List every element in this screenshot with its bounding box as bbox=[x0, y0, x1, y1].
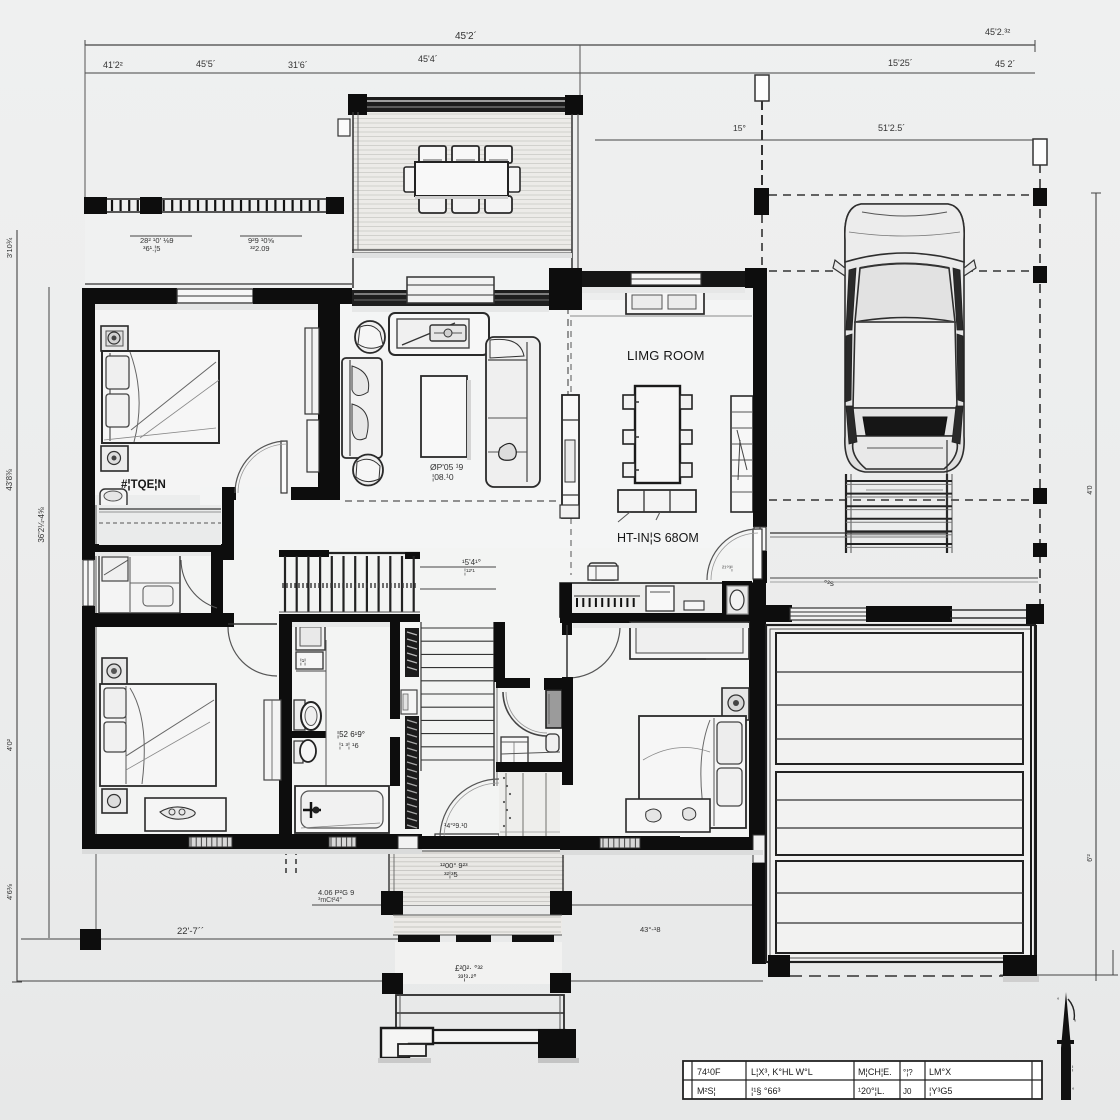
svg-text:15'25´: 15'25´ bbox=[888, 58, 913, 68]
svg-text:ØP'05 ¹9: ØP'05 ¹9 bbox=[430, 462, 464, 472]
svg-text:LIMG ROOM: LIMG ROOM bbox=[627, 348, 705, 363]
svg-text:3'10¾: 3'10¾ bbox=[5, 237, 14, 258]
svg-text:³²¦³5: ³²¦³5 bbox=[444, 870, 458, 879]
svg-text:£²0²· °³²: £²0²· °³² bbox=[455, 964, 483, 973]
svg-text:¦08.¹0: ¦08.¹0 bbox=[432, 472, 454, 482]
svg-text:LM°X: LM°X bbox=[929, 1067, 951, 1077]
svg-text:4'6⅜: 4'6⅜ bbox=[5, 883, 14, 900]
svg-text:²¹°³¦: ²¹°³¦ bbox=[722, 564, 733, 572]
svg-text:¹20°¦L.: ¹20°¦L. bbox=[858, 1086, 884, 1096]
svg-text:L¦X³, K°HL W°L: L¦X³, K°HL W°L bbox=[751, 1067, 813, 1077]
svg-text:41'2²: 41'2² bbox=[103, 60, 123, 70]
svg-text:M²S¦: M²S¦ bbox=[697, 1086, 716, 1096]
svg-text:M¦CH¦E.: M¦CH¦E. bbox=[858, 1067, 892, 1077]
svg-text:4'0: 4'0 bbox=[1087, 485, 1094, 494]
svg-text:J0: J0 bbox=[903, 1087, 912, 1096]
svg-text:4.06 P²G 9: 4.06 P²G 9 bbox=[318, 888, 354, 897]
svg-text:#¦TQE¦N: #¦TQE¦N bbox=[121, 479, 166, 491]
svg-text:31'6´: 31'6´ bbox=[288, 60, 308, 70]
svg-text:45'2.³²: 45'2.³² bbox=[985, 27, 1010, 37]
svg-text:³6¹.¦5: ³6¹.¦5 bbox=[143, 244, 160, 253]
svg-text:³³¦³·²°: ³³¦³·²° bbox=[458, 973, 477, 982]
svg-text:74¹0F: 74¹0F bbox=[697, 1067, 721, 1077]
svg-text:³mCt²4°: ³mCt²4° bbox=[318, 896, 342, 904]
svg-text:45'5´: 45'5´ bbox=[196, 59, 216, 69]
svg-text:15°: 15° bbox=[733, 123, 746, 133]
svg-text:43°-¹8: 43°-¹8 bbox=[640, 925, 661, 934]
svg-text:45 2´: 45 2´ bbox=[995, 59, 1016, 69]
svg-text:¹²00° 9²³: ¹²00° 9²³ bbox=[440, 861, 468, 870]
svg-text:45'4´: 45'4´ bbox=[418, 54, 438, 64]
svg-text:51'2.5´: 51'2.5´ bbox=[878, 123, 905, 133]
svg-text:22'-7´´: 22'-7´´ bbox=[177, 926, 204, 937]
svg-text:¦¹§ °66³: ¦¹§ °66³ bbox=[751, 1086, 780, 1096]
svg-text:45'2´: 45'2´ bbox=[455, 30, 477, 42]
svg-text:43'8⅜: 43'8⅜ bbox=[5, 469, 14, 491]
svg-text:°¦?: °¦? bbox=[903, 1068, 913, 1077]
svg-text:°²s: °²s bbox=[824, 579, 834, 588]
svg-text:¦Y³G5: ¦Y³G5 bbox=[929, 1086, 952, 1096]
svg-text:¦¹ ³¦ ¹6: ¦¹ ³¦ ¹6 bbox=[339, 741, 359, 750]
svg-text:6'²: 6'² bbox=[1087, 854, 1094, 862]
svg-text:36'2¼-4⅝: 36'2¼-4⅝ bbox=[37, 507, 46, 543]
svg-text:¦52 6¹9°: ¦52 6¹9° bbox=[337, 730, 365, 739]
svg-text:4'0²: 4'0² bbox=[5, 738, 14, 751]
svg-text:¦¹¦: ¦¹¦ bbox=[300, 659, 306, 666]
svg-text:HT-IN¦S 68OM: HT-IN¦S 68OM bbox=[617, 531, 699, 545]
svg-text:³²2.09: ³²2.09 bbox=[250, 244, 270, 253]
svg-text:¹4°²9.¹0: ¹4°²9.¹0 bbox=[444, 822, 468, 830]
svg-text:¹5'4¹°: ¹5'4¹° bbox=[462, 558, 481, 567]
svg-text:¦¹²'¹: ¦¹²'¹ bbox=[464, 567, 475, 576]
